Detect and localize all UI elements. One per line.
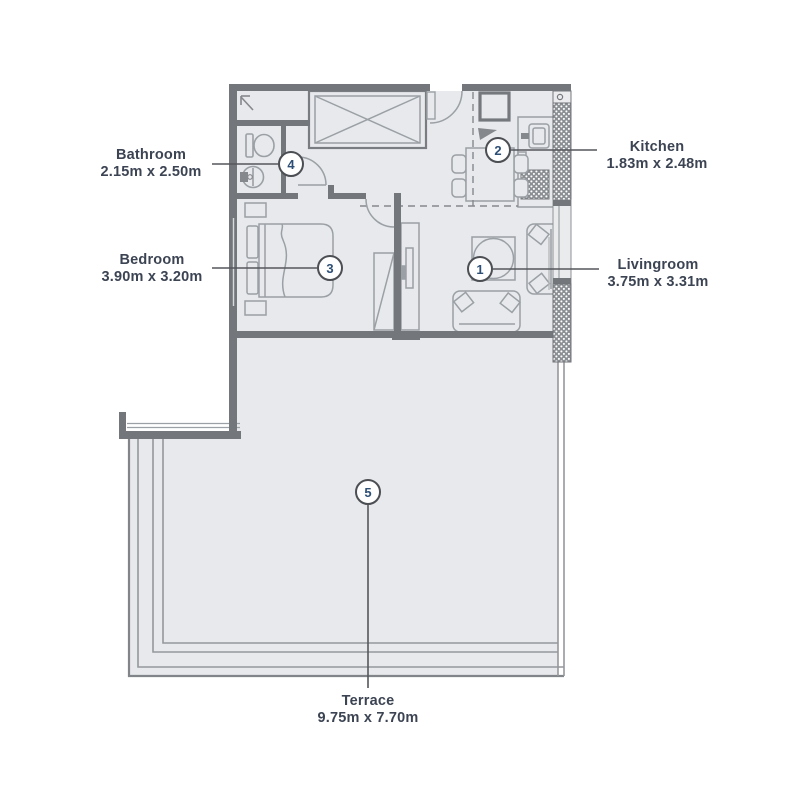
room-dimensions: 9.75m x 7.70m [318, 710, 419, 727]
room-dimensions: 3.90m x 3.20m [102, 269, 203, 286]
room-name: Bathroom [101, 147, 202, 164]
room-marker-kitchen: 2 [485, 137, 511, 163]
wardrobe [374, 253, 394, 330]
room-label-kitchen: Kitchen 1.83m x 2.48m [607, 139, 708, 172]
room-label-livingroom: Livingroom 3.75m x 3.31m [608, 257, 709, 290]
floor-plan-drawing [0, 0, 800, 800]
room-marker-bedroom: 3 [317, 255, 343, 281]
room-label-bedroom: Bedroom 3.90m x 3.20m [102, 252, 203, 285]
room-label-bathroom: Bathroom 2.15m x 2.50m [101, 147, 202, 180]
tv-unit [401, 223, 419, 330]
room-dimensions: 2.15m x 2.50m [101, 164, 202, 181]
floor-plan: 1 2 3 4 5 Bathroom 2.15m x 2.50m Bedroom… [0, 0, 800, 800]
room-label-terrace: Terrace 9.75m x 7.70m [318, 693, 419, 726]
room-marker-terrace: 5 [355, 479, 381, 505]
room-dimensions: 1.83m x 2.48m [607, 156, 708, 173]
room-name: Bedroom [102, 252, 203, 269]
room-name: Livingroom [608, 257, 709, 274]
room-name: Terrace [318, 693, 419, 710]
room-marker-livingroom: 1 [467, 256, 493, 282]
room-name: Kitchen [607, 139, 708, 156]
room-marker-bathroom: 4 [278, 151, 304, 177]
terrace-ledge [119, 412, 241, 439]
room-dimensions: 3.75m x 3.31m [608, 274, 709, 291]
